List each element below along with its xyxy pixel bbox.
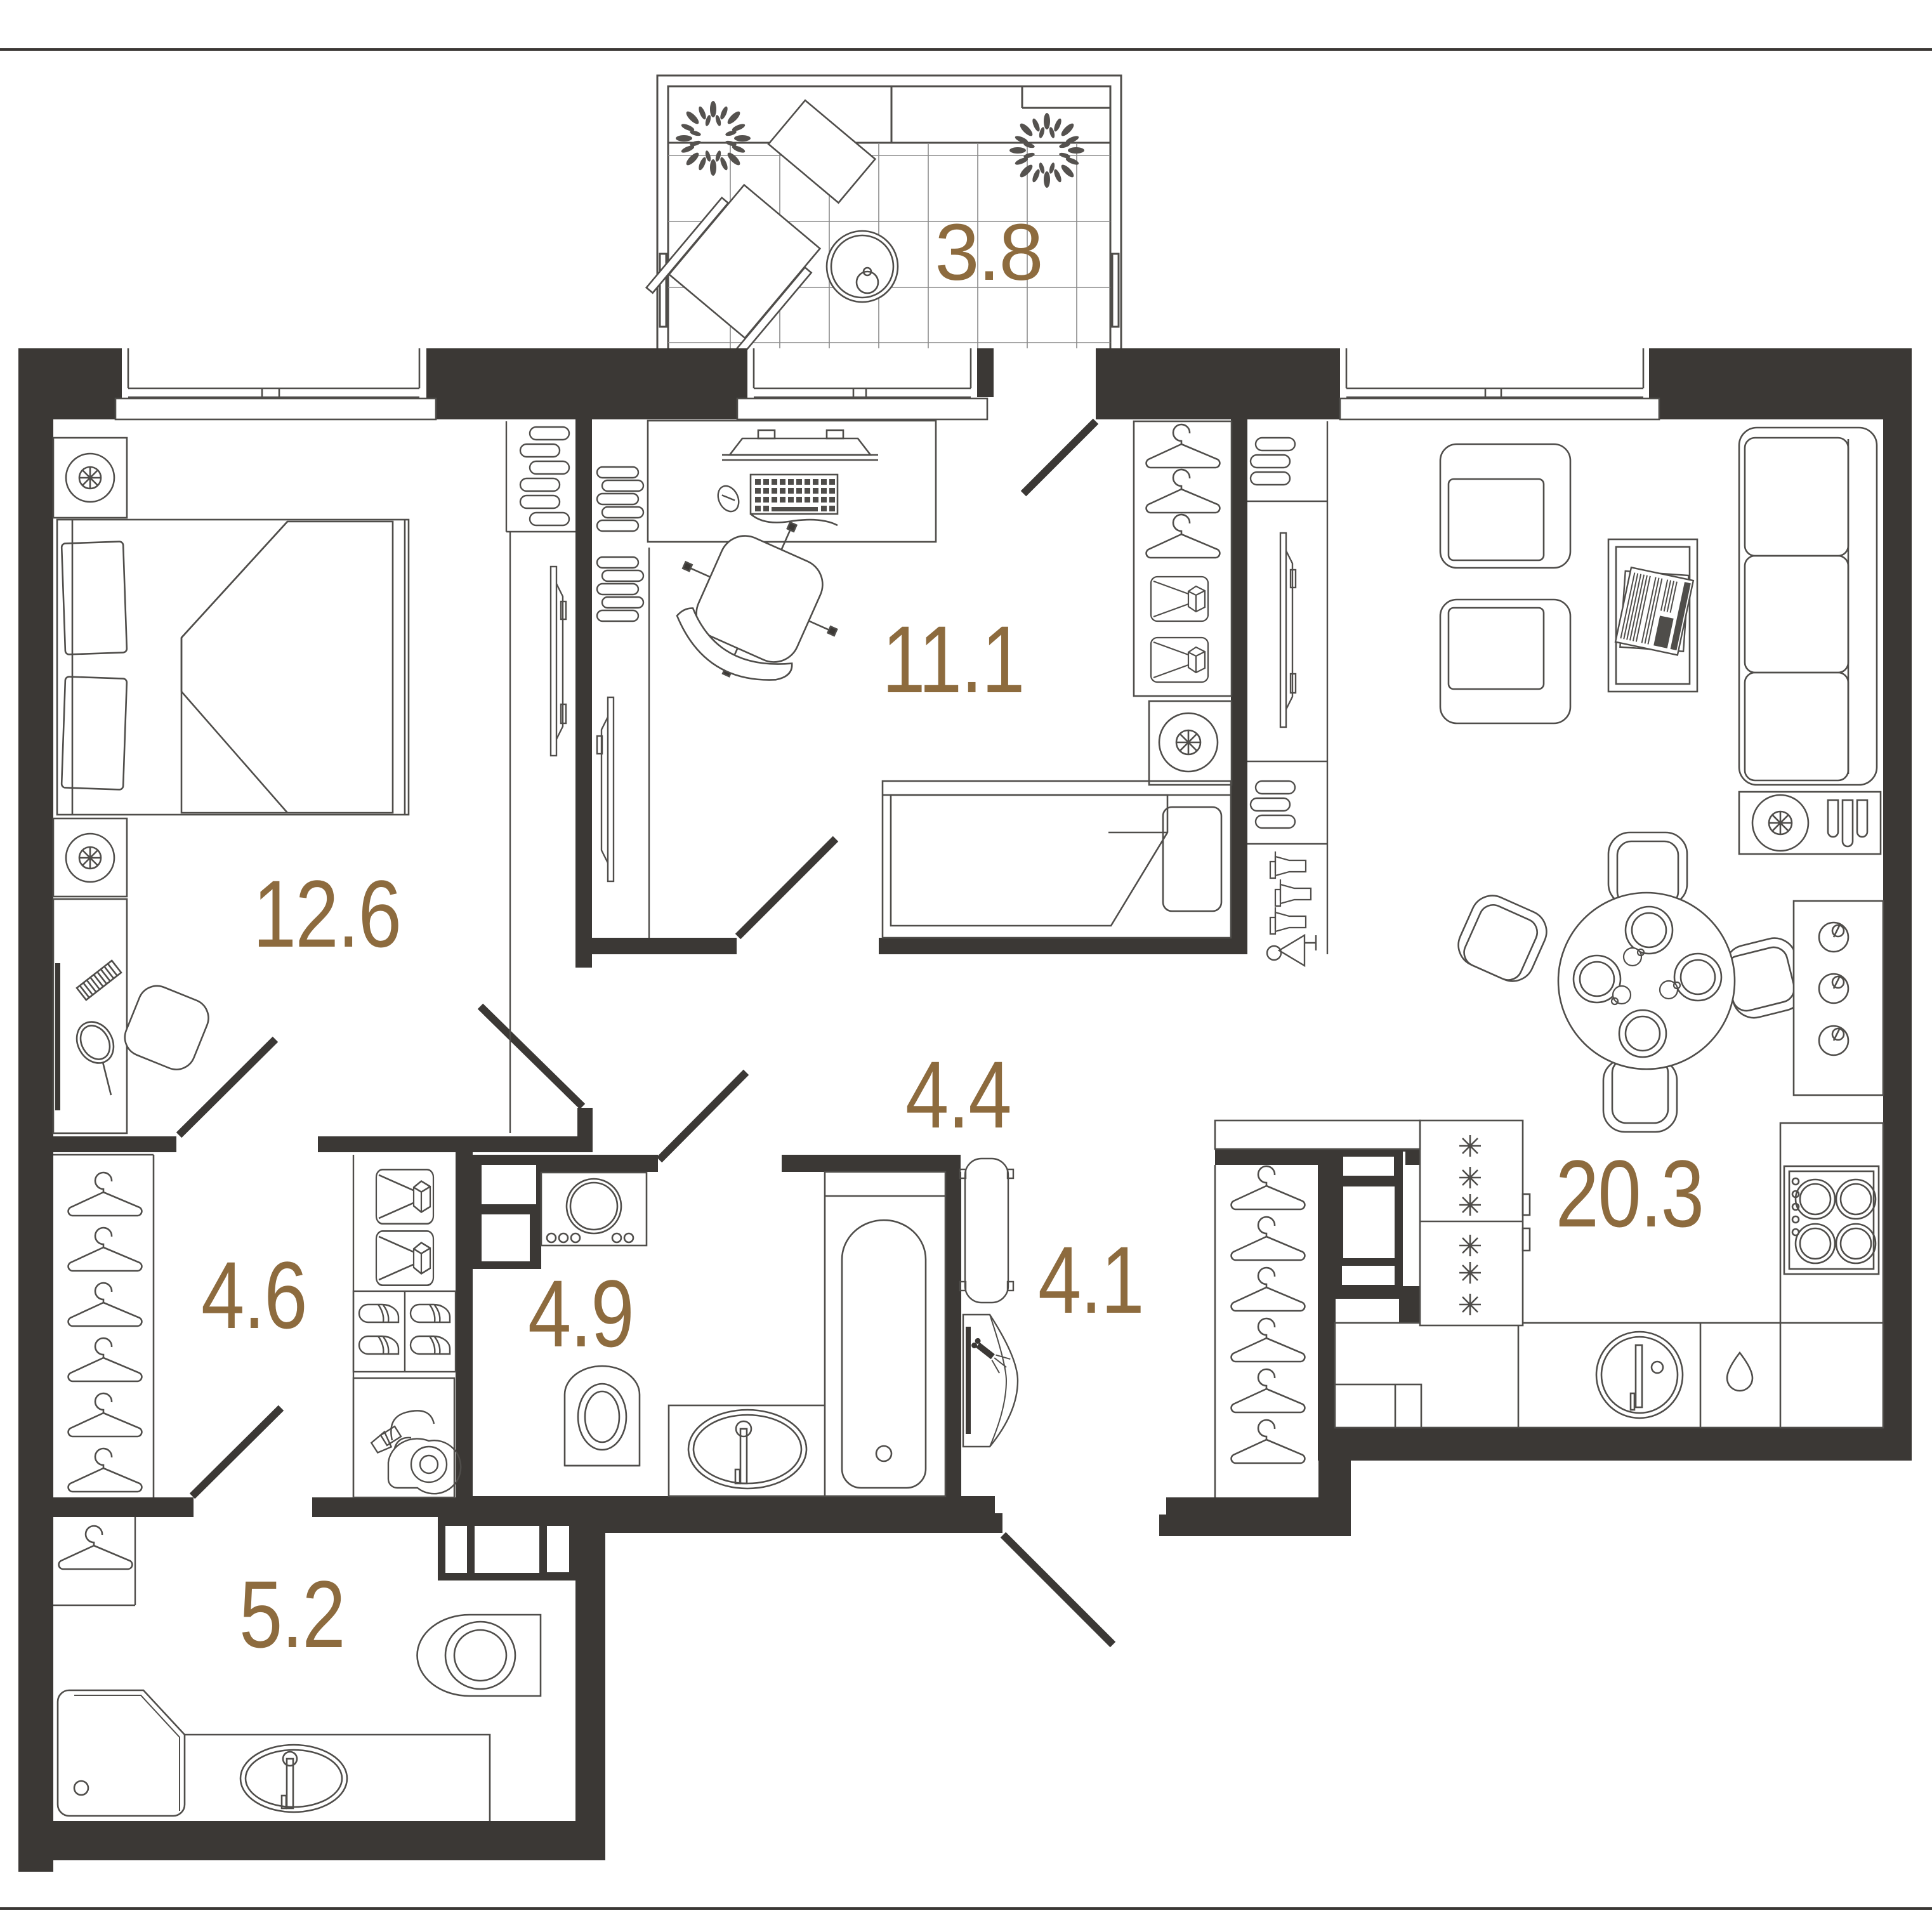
svg-text:4.6: 4.6 <box>201 1242 306 1348</box>
svg-text:4.1: 4.1 <box>1038 1227 1143 1333</box>
svg-text:4.4: 4.4 <box>905 1042 1011 1148</box>
svg-text:11.1: 11.1 <box>882 607 1024 713</box>
svg-text:3.8: 3.8 <box>935 207 1042 297</box>
svg-text:5.2: 5.2 <box>239 1561 345 1667</box>
svg-text:4.9: 4.9 <box>528 1261 633 1367</box>
svg-text:20.3: 20.3 <box>1556 1141 1704 1247</box>
svg-text:12.6: 12.6 <box>253 861 401 967</box>
